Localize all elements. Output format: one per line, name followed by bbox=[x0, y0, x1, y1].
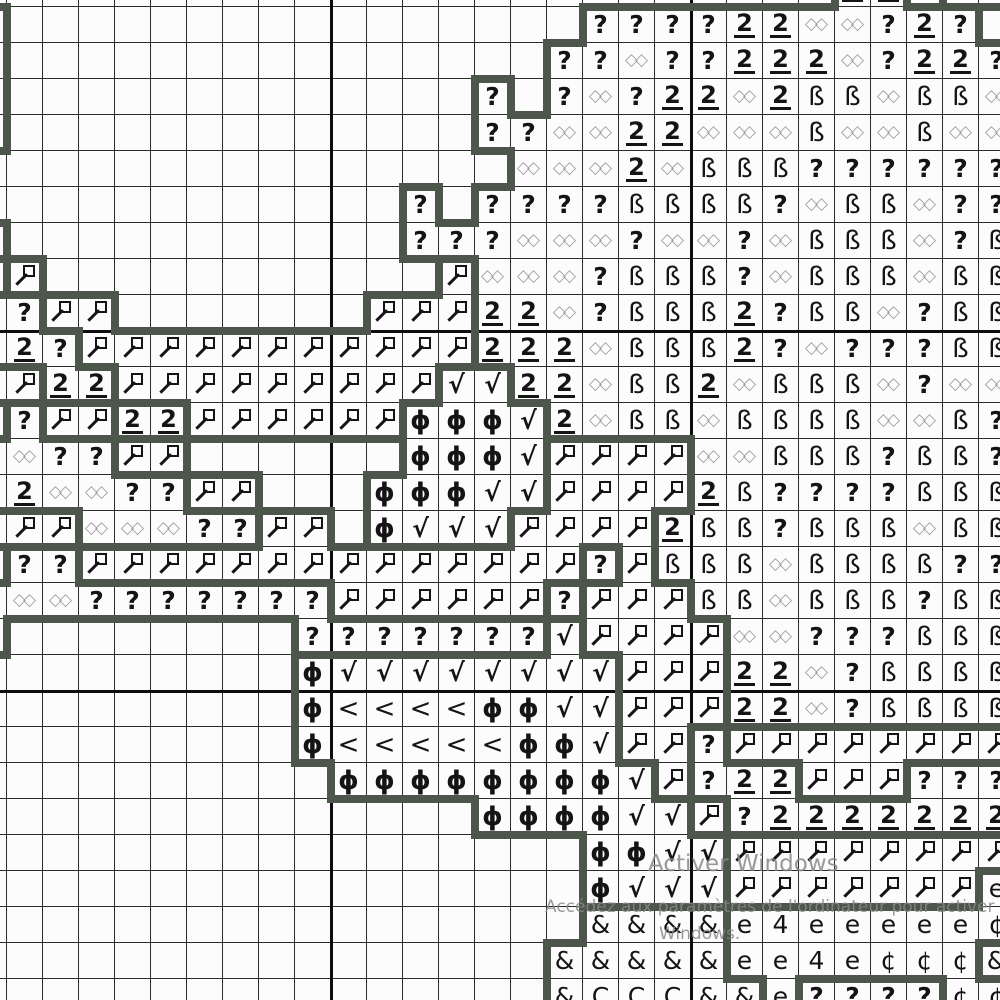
grid-cell: ß bbox=[907, 547, 943, 583]
stitch-symbol: ? bbox=[305, 588, 320, 613]
grid-cell bbox=[619, 619, 655, 655]
stitch-symbol: ? bbox=[125, 480, 140, 505]
grid-cell: ß bbox=[979, 619, 1000, 655]
stitch-symbol: √ bbox=[520, 444, 537, 469]
stitch-symbol: ◇◇ bbox=[661, 160, 684, 177]
grid-cell: 2 bbox=[151, 403, 187, 439]
grid-cell: ϕ bbox=[475, 763, 511, 799]
stitch-symbol: ? bbox=[485, 84, 500, 109]
stitch-symbol: ? bbox=[17, 408, 32, 433]
stitch-symbol: 2 bbox=[950, 47, 971, 74]
grid-cell: ? bbox=[655, 43, 691, 79]
grid-cell bbox=[43, 7, 79, 43]
region-outline-segment bbox=[939, 975, 947, 1000]
stitch-symbol: ◇◇ bbox=[49, 484, 72, 501]
stitch-symbol: 2 bbox=[734, 767, 755, 794]
grid-cell bbox=[0, 151, 7, 187]
magnifier-symbol bbox=[43, 295, 78, 331]
grid-cell bbox=[403, 367, 439, 403]
grid-cell bbox=[259, 7, 295, 43]
stitch-symbol: ◇◇ bbox=[589, 340, 612, 357]
grid-cell: ß bbox=[871, 655, 907, 691]
grid-cell bbox=[367, 907, 403, 943]
grid-cell: ◇◇ bbox=[979, 367, 1000, 403]
grid-cell: ß bbox=[799, 583, 835, 619]
grid-cell bbox=[187, 259, 223, 295]
magnifier-symbol bbox=[151, 331, 186, 367]
grid-cell bbox=[367, 79, 403, 115]
grid-cell: ◇◇ bbox=[871, 403, 907, 439]
grid-cell bbox=[259, 799, 295, 835]
stitch-symbol: 2 bbox=[806, 803, 827, 830]
stitch-symbol: ß bbox=[844, 516, 860, 542]
grid-cell bbox=[655, 691, 691, 727]
grid-cell: ϕ bbox=[295, 655, 331, 691]
grid-cell: ◇◇ bbox=[979, 79, 1000, 115]
grid-cell: ? bbox=[43, 547, 79, 583]
magnifier-symbol bbox=[619, 475, 654, 511]
grid-cell bbox=[259, 331, 295, 367]
region-outline-segment bbox=[795, 975, 803, 1000]
grid-cell bbox=[187, 115, 223, 151]
grid-cell: ? bbox=[727, 223, 763, 259]
grid-cell bbox=[259, 655, 295, 691]
grid-cell bbox=[115, 79, 151, 115]
grid-cell bbox=[259, 403, 295, 439]
grid-cell bbox=[331, 223, 367, 259]
stitch-symbol: ß bbox=[952, 444, 968, 470]
grid-cell bbox=[475, 907, 511, 943]
grid-cell: √ bbox=[367, 655, 403, 691]
grid-cell: ? bbox=[475, 79, 511, 115]
stitch-symbol: ? bbox=[161, 588, 176, 613]
stitch-symbol: √ bbox=[448, 516, 465, 541]
region-outline-segment bbox=[471, 543, 515, 551]
grid-cell bbox=[7, 7, 43, 43]
stitch-symbol: ϕ bbox=[446, 408, 467, 434]
stitch-symbol: √ bbox=[484, 480, 501, 505]
stitch-symbol: ß bbox=[628, 264, 644, 290]
grid-cell bbox=[79, 151, 115, 187]
grid-cell bbox=[511, 871, 547, 907]
grid-cell: ◇◇ bbox=[763, 223, 799, 259]
grid-cell bbox=[259, 295, 295, 331]
grid-cell bbox=[151, 295, 187, 331]
magnifier-symbol bbox=[943, 727, 978, 763]
magnifier-symbol bbox=[7, 367, 42, 403]
grid-cell bbox=[367, 547, 403, 583]
stitch-symbol: ? bbox=[773, 336, 788, 361]
stitch-symbol: 2 bbox=[806, 47, 827, 74]
stitch-symbol: e bbox=[773, 984, 788, 1000]
stitch-symbol: ß bbox=[664, 372, 680, 398]
grid-cell bbox=[187, 295, 223, 331]
stitch-symbol: ? bbox=[953, 552, 968, 577]
grid-cell: ¢ bbox=[943, 979, 979, 1000]
grid-cell bbox=[79, 0, 115, 7]
stitch-symbol: 2 bbox=[662, 515, 683, 542]
grid-cell: ß bbox=[691, 331, 727, 367]
stitch-symbol: Ç bbox=[592, 984, 609, 1000]
grid-cell bbox=[403, 871, 439, 907]
grid-cell bbox=[295, 835, 331, 871]
stitch-symbol: & bbox=[591, 948, 611, 973]
grid-cell: & bbox=[691, 943, 727, 979]
grid-cell bbox=[403, 7, 439, 43]
magnifier-symbol bbox=[619, 691, 654, 727]
grid-cell: 2 bbox=[763, 799, 799, 835]
stitch-symbol: ◇◇ bbox=[589, 88, 612, 105]
stitch-symbol: ? bbox=[593, 264, 608, 289]
stitch-symbol: ◇◇ bbox=[769, 628, 792, 645]
stitch-symbol: ? bbox=[449, 228, 464, 253]
grid-cell: ϕ bbox=[475, 403, 511, 439]
stitch-symbol: 2 bbox=[914, 11, 935, 38]
stitch-symbol: ß bbox=[952, 588, 968, 614]
region-outline-segment bbox=[219, 543, 263, 551]
stitch-symbol: ? bbox=[89, 588, 104, 613]
magnifier-symbol bbox=[43, 403, 78, 439]
stitch-symbol: < bbox=[446, 696, 468, 722]
grid-cell: 2 bbox=[547, 403, 583, 439]
stitch-symbol: ß bbox=[844, 192, 860, 218]
stitch-symbol: ? bbox=[521, 120, 536, 145]
grid-cell bbox=[547, 835, 583, 871]
grid-cell bbox=[439, 0, 475, 7]
magnifier-symbol bbox=[331, 331, 366, 367]
stitch-symbol: ß bbox=[988, 480, 1000, 506]
grid-cell: 2 bbox=[7, 475, 43, 511]
stitch-symbol: ß bbox=[988, 660, 1000, 686]
region-outline-segment bbox=[867, 795, 911, 803]
grid-cell: ß bbox=[943, 79, 979, 115]
grid-cell: 2 bbox=[7, 331, 43, 367]
stitch-symbol: ß bbox=[736, 192, 752, 218]
grid-cell: ß bbox=[835, 511, 871, 547]
grid-cell bbox=[439, 871, 475, 907]
stitch-symbol: ß bbox=[916, 120, 932, 146]
grid-cell bbox=[115, 907, 151, 943]
grid-cell bbox=[223, 259, 259, 295]
grid-cell bbox=[367, 0, 403, 7]
grid-cell: ? bbox=[547, 79, 583, 115]
stitch-symbol: ? bbox=[197, 516, 212, 541]
stitch-symbol: √ bbox=[592, 696, 609, 721]
grid-cell: ◇◇ bbox=[727, 115, 763, 151]
stitch-symbol: 2 bbox=[14, 335, 35, 362]
grid-cell: √ bbox=[655, 799, 691, 835]
grid-cell bbox=[223, 619, 259, 655]
grid-cell bbox=[43, 655, 79, 691]
grid-cell bbox=[115, 367, 151, 403]
stitch-symbol: 2 bbox=[770, 767, 791, 794]
grid-cell: 2 bbox=[943, 43, 979, 79]
grid-cell bbox=[0, 691, 7, 727]
stitch-symbol: ? bbox=[53, 552, 68, 577]
grid-cell: Ç bbox=[655, 979, 691, 1000]
grid-cell: ϕ bbox=[403, 439, 439, 475]
magnifier-symbol bbox=[259, 547, 294, 583]
grid-cell bbox=[331, 43, 367, 79]
grid-cell bbox=[115, 187, 151, 223]
grid-cell bbox=[7, 43, 43, 79]
magnifier-symbol bbox=[943, 835, 978, 871]
grid-cell bbox=[115, 619, 151, 655]
grid-cell: & bbox=[583, 943, 619, 979]
grid-cell bbox=[187, 43, 223, 79]
grid-cell: 2 bbox=[871, 799, 907, 835]
grid-cell: ß bbox=[655, 187, 691, 223]
grid-cell bbox=[7, 763, 43, 799]
stitch-symbol: ? bbox=[665, 48, 680, 73]
stitch-symbol: ◇◇ bbox=[841, 52, 864, 69]
magnifier-symbol bbox=[403, 331, 438, 367]
stitch-symbol: 2 bbox=[698, 479, 719, 506]
magnifier-symbol bbox=[439, 547, 474, 583]
grid-cell: ϕ bbox=[583, 799, 619, 835]
magnifier-symbol bbox=[547, 547, 582, 583]
grid-cell: ◇◇ bbox=[727, 619, 763, 655]
stitch-symbol: ß bbox=[952, 408, 968, 434]
grid-cell: ? bbox=[835, 691, 871, 727]
grid-cell bbox=[187, 79, 223, 115]
grid-cell: ? bbox=[583, 295, 619, 331]
grid-cell: 2 bbox=[763, 655, 799, 691]
stitch-symbol: ◇◇ bbox=[157, 520, 180, 537]
grid-cell bbox=[0, 835, 7, 871]
stitch-symbol: ß bbox=[736, 516, 752, 542]
stitch-symbol: ß bbox=[916, 444, 932, 470]
grid-cell: ? bbox=[691, 43, 727, 79]
region-outline-segment bbox=[543, 975, 551, 1000]
grid-cell: ◇◇ bbox=[0, 295, 7, 331]
stitch-symbol: ◇◇ bbox=[985, 124, 1000, 141]
grid-cell bbox=[223, 799, 259, 835]
grid-cell: ◇◇ bbox=[907, 259, 943, 295]
grid-cell bbox=[655, 439, 691, 475]
magnifier-symbol bbox=[619, 583, 654, 619]
grid-cell bbox=[43, 295, 79, 331]
grid-cell: ? bbox=[547, 43, 583, 79]
grid-cell bbox=[367, 943, 403, 979]
grid-cell: ß bbox=[691, 295, 727, 331]
grid-cell bbox=[223, 187, 259, 223]
stitch-symbol: < bbox=[374, 696, 396, 722]
grid-cell bbox=[295, 115, 331, 151]
grid-cell bbox=[7, 907, 43, 943]
grid-cell bbox=[295, 439, 331, 475]
grid-cell: e bbox=[763, 979, 799, 1000]
grid-cell bbox=[259, 547, 295, 583]
grid-cell: ? bbox=[871, 43, 907, 79]
grid-cell: < bbox=[331, 727, 367, 763]
grid-cell bbox=[79, 43, 115, 79]
grid-cell bbox=[943, 727, 979, 763]
grid-cell: √ bbox=[511, 475, 547, 511]
grid-cell bbox=[439, 151, 475, 187]
grid-cell: 2 bbox=[907, 799, 943, 835]
grid-cell: ◇◇ bbox=[727, 367, 763, 403]
grid-cell bbox=[367, 151, 403, 187]
grid-cell: ? bbox=[979, 547, 1000, 583]
stitch-symbol: < bbox=[446, 732, 468, 758]
stitch-symbol: ß bbox=[700, 588, 716, 614]
grid-cell bbox=[187, 979, 223, 1000]
region-outline-segment bbox=[0, 579, 11, 587]
stitch-symbol: ß bbox=[880, 588, 896, 614]
stitch-symbol: ß bbox=[664, 264, 680, 290]
stitch-symbol: ◇◇ bbox=[517, 232, 540, 249]
grid-cell bbox=[691, 799, 727, 835]
grid-cell bbox=[151, 439, 187, 475]
stitch-symbol: ? bbox=[845, 660, 860, 685]
grid-cell: √ bbox=[439, 511, 475, 547]
grid-cell bbox=[0, 727, 7, 763]
grid-cell bbox=[115, 655, 151, 691]
grid-cell bbox=[151, 727, 187, 763]
grid-cell bbox=[151, 115, 187, 151]
grid-cell bbox=[43, 223, 79, 259]
stitch-symbol: ß bbox=[916, 84, 932, 110]
grid-cell bbox=[367, 331, 403, 367]
grid-cell: ß bbox=[907, 115, 943, 151]
stitch-symbol: ? bbox=[773, 480, 788, 505]
stitch-symbol: ϕ bbox=[374, 768, 395, 794]
magnifier-symbol bbox=[295, 547, 330, 583]
grid-cell: ϕ bbox=[475, 799, 511, 835]
grid-cell bbox=[7, 655, 43, 691]
grid-cell: & bbox=[547, 979, 583, 1000]
grid-cell bbox=[691, 619, 727, 655]
stitch-symbol: ϕ bbox=[446, 480, 467, 506]
grid-cell bbox=[655, 583, 691, 619]
stitch-symbol: ß bbox=[700, 336, 716, 362]
grid-cell bbox=[367, 979, 403, 1000]
stitch-symbol: ß bbox=[736, 552, 752, 578]
grid-cell: 2 bbox=[727, 691, 763, 727]
grid-cell bbox=[151, 691, 187, 727]
magnifier-symbol bbox=[439, 259, 474, 295]
magnifier-symbol bbox=[367, 583, 402, 619]
stitch-symbol: < bbox=[374, 732, 396, 758]
stitch-symbol: ϕ bbox=[482, 444, 503, 470]
grid-cell: ß bbox=[619, 259, 655, 295]
grid-cell bbox=[331, 151, 367, 187]
magnifier-symbol bbox=[619, 511, 654, 547]
grid-cell: 2 bbox=[619, 115, 655, 151]
grid-cell: ? bbox=[979, 43, 1000, 79]
stitch-symbol: ◇◇ bbox=[697, 448, 720, 465]
stitch-symbol: < bbox=[338, 732, 360, 758]
grid-cell: 2 bbox=[511, 367, 547, 403]
stitch-symbol: ? bbox=[413, 624, 428, 649]
magnifier-symbol bbox=[259, 403, 294, 439]
stitch-symbol: ? bbox=[629, 228, 644, 253]
grid-cell: ? bbox=[619, 7, 655, 43]
stitch-symbol: e bbox=[773, 948, 788, 973]
magnifier-symbol bbox=[223, 403, 258, 439]
grid-cell bbox=[367, 403, 403, 439]
grid-cell bbox=[439, 979, 475, 1000]
grid-cell: ◇◇ bbox=[619, 43, 655, 79]
region-outline-segment bbox=[975, 39, 1000, 47]
grid-cell: ß bbox=[655, 403, 691, 439]
grid-cell bbox=[151, 223, 187, 259]
grid-cell bbox=[295, 79, 331, 115]
stitch-symbol: 2 bbox=[914, 803, 935, 830]
magnifier-symbol bbox=[187, 403, 222, 439]
grid-cell bbox=[655, 619, 691, 655]
grid-cell: ◇◇ bbox=[115, 511, 151, 547]
stitch-symbol: ¢ bbox=[953, 948, 969, 973]
grid-cell: 2 bbox=[619, 151, 655, 187]
grid-cell: ? bbox=[907, 763, 943, 799]
grid-cell: ? bbox=[403, 619, 439, 655]
grid-cell: 2 bbox=[0, 475, 7, 511]
stitch-symbol: ? bbox=[845, 624, 860, 649]
stitch-symbol: ? bbox=[917, 372, 932, 397]
grid-cell bbox=[655, 763, 691, 799]
grid-cell bbox=[43, 259, 79, 295]
stitch-symbol: √ bbox=[484, 372, 501, 397]
stitch-symbol: 2 bbox=[770, 803, 791, 830]
grid-cell: ß bbox=[727, 547, 763, 583]
magnifier-symbol bbox=[583, 583, 618, 619]
grid-cell: ϕ bbox=[367, 763, 403, 799]
grid-cell bbox=[511, 79, 547, 115]
stitch-symbol: ß bbox=[772, 408, 788, 434]
grid-cell bbox=[475, 943, 511, 979]
magnifier-symbol bbox=[655, 691, 690, 727]
stitch-symbol: ß bbox=[844, 408, 860, 434]
grid-cell bbox=[187, 943, 223, 979]
grid-cell bbox=[151, 547, 187, 583]
grid-cell: ◇◇ bbox=[655, 151, 691, 187]
magnifier-symbol bbox=[727, 727, 762, 763]
grid-cell bbox=[475, 151, 511, 187]
grid-cell bbox=[79, 835, 115, 871]
grid-cell: ? bbox=[583, 7, 619, 43]
grid-cell: ? bbox=[763, 295, 799, 331]
grid-cell bbox=[223, 475, 259, 511]
magnifier-symbol bbox=[7, 511, 42, 547]
grid-cell bbox=[259, 43, 295, 79]
grid-cell bbox=[7, 511, 43, 547]
stitch-symbol: ß bbox=[952, 264, 968, 290]
magnifier-symbol bbox=[79, 403, 114, 439]
grid-cell bbox=[151, 331, 187, 367]
stitch-symbol: ? bbox=[413, 192, 428, 217]
grid-cell bbox=[79, 943, 115, 979]
grid-cell: ? bbox=[475, 115, 511, 151]
stitch-symbol: 2 bbox=[482, 299, 503, 326]
stitch-symbol: √ bbox=[376, 660, 393, 685]
grid-cell: ◇◇ bbox=[583, 223, 619, 259]
magnifier-symbol bbox=[979, 835, 1000, 871]
grid-cell: ϕ bbox=[403, 763, 439, 799]
grid-cell: ? bbox=[619, 223, 655, 259]
grid-cell: ß bbox=[799, 439, 835, 475]
stitch-symbol: ß bbox=[952, 660, 968, 686]
grid-cell bbox=[0, 511, 7, 547]
grid-cell: ϕ bbox=[403, 475, 439, 511]
stitch-symbol: ◇◇ bbox=[805, 664, 828, 681]
region-outline-segment bbox=[0, 435, 11, 443]
magnifier-symbol bbox=[295, 403, 330, 439]
grid-cell bbox=[43, 943, 79, 979]
stitch-symbol: ϕ bbox=[482, 408, 503, 434]
grid-cell bbox=[0, 367, 7, 403]
